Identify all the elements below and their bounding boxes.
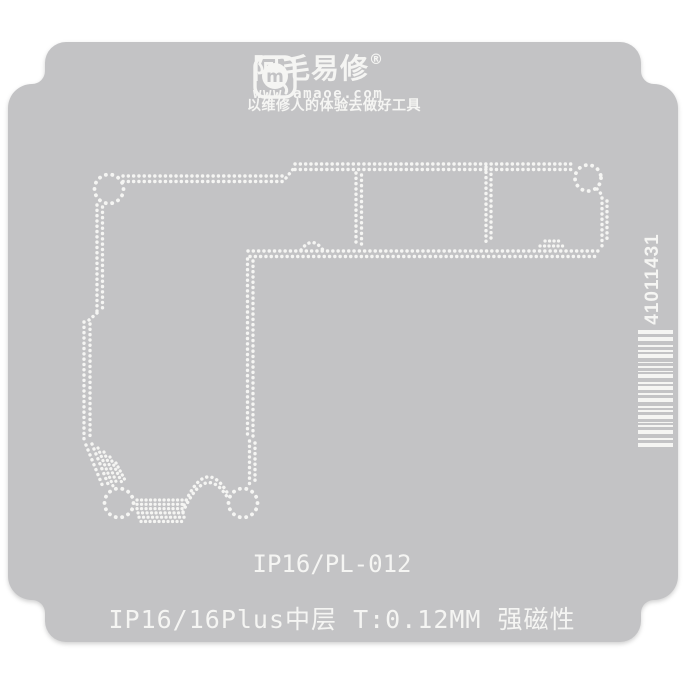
- spec-engraving: IP16/16Plus中层 T:0.12MM 强磁性: [108, 600, 575, 636]
- model-code-engraving: IP16/PL-012: [253, 550, 412, 578]
- brand-tagline: 以维修人的体验去做好工具: [247, 95, 421, 115]
- barcode-number: 41011431: [641, 231, 665, 327]
- stencil-product-photo: m 阿毛易修 ® www.amaoe.com 以维修人的体验去做好工具 IP16…: [0, 0, 686, 686]
- amaoe-m-logo-icon: m: [253, 55, 297, 99]
- barcode-bars: [638, 330, 673, 447]
- logo-monogram: m: [266, 67, 284, 87]
- registered-mark: ®: [369, 53, 383, 67]
